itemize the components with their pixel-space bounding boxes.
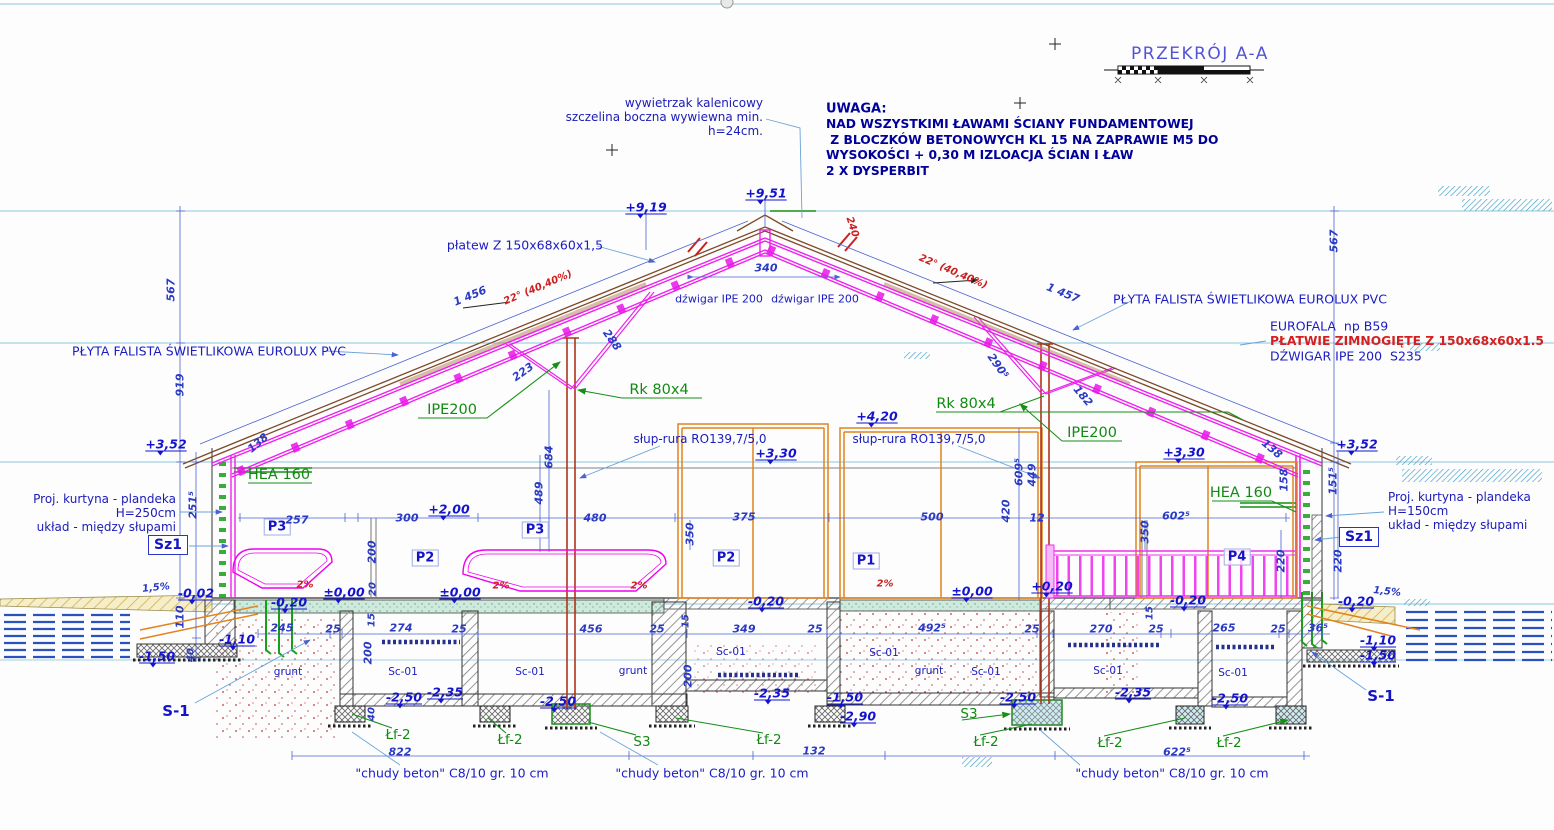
scale-bar <box>1104 66 1264 83</box>
section-drawing <box>0 0 1554 830</box>
fence <box>1046 545 1295 598</box>
section-drawing-stage: PRZEKRÓJ A-A wywietrzak kalenicowy szcze… <box>0 0 1554 830</box>
roof-structure <box>183 211 1351 477</box>
drawing-marks <box>606 0 1264 156</box>
top-pin-icon <box>721 0 733 8</box>
